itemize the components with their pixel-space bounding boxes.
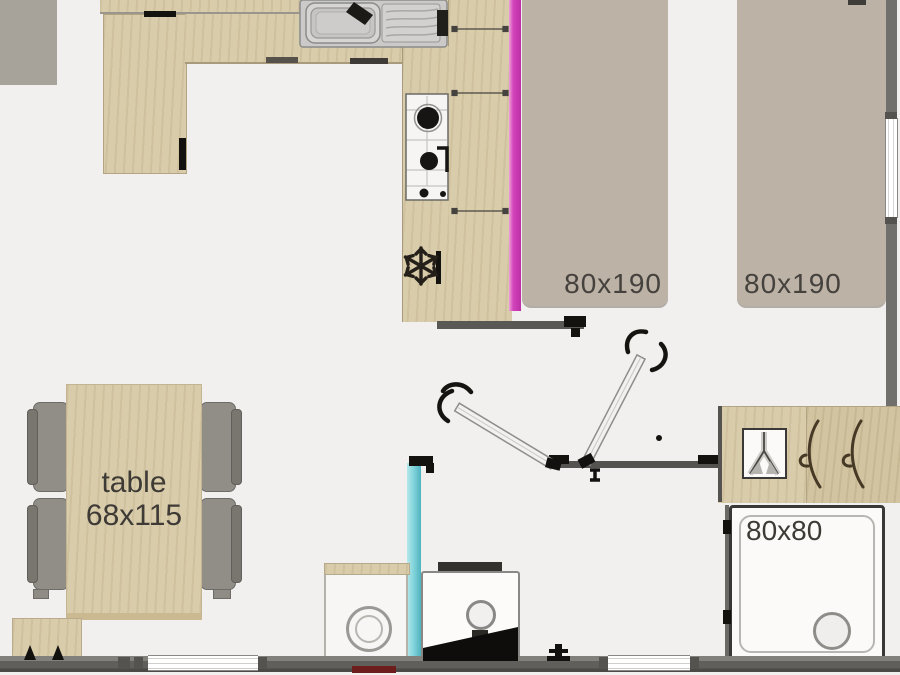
- window-cap: [118, 657, 130, 669]
- window-cap: [599, 657, 608, 669]
- chair: [33, 498, 69, 590]
- wall-mark: [848, 0, 866, 5]
- open-door-icon: [439, 384, 562, 470]
- hall-wall: [548, 461, 719, 468]
- shower-size-label: 80x80: [746, 514, 822, 547]
- bed-left: 80x190: [522, 0, 668, 306]
- chair-foot: [213, 589, 231, 599]
- window-cap: [258, 657, 267, 669]
- kitchen-appliance-column: [402, 46, 449, 322]
- washing-machine-top: [324, 563, 410, 575]
- window-bottom-right: [608, 655, 690, 671]
- hinge-icon: [564, 316, 586, 327]
- window-cap: [885, 217, 897, 224]
- chair-back: [27, 409, 38, 485]
- hinge-icon: [571, 328, 580, 337]
- chair-back: [231, 409, 242, 485]
- chair-back: [27, 505, 38, 583]
- wall-block-top-left: [0, 0, 57, 85]
- dot-mark: [656, 435, 662, 441]
- drain-icon: [813, 612, 851, 650]
- window-cap: [885, 112, 897, 119]
- chair-back: [231, 505, 242, 583]
- bed-right: 80x190: [737, 0, 886, 306]
- bed-right-size-label: 80x190: [744, 268, 842, 300]
- floor-plan: 80x190 80x190 80x80: [0, 0, 900, 675]
- bathroom-cabinet-right: [806, 406, 900, 503]
- chair-foot: [33, 589, 49, 599]
- wall-right-lower: [886, 224, 897, 416]
- cabinet-edge-wall: [718, 406, 722, 502]
- kitchen-counter-right-strip: [448, 0, 512, 322]
- window-cap: [690, 657, 699, 669]
- cabinet-handle-icon: [179, 138, 186, 170]
- bed-left-size-label: 80x190: [564, 268, 662, 300]
- chair: [33, 402, 69, 492]
- window-bottom-left: [148, 655, 258, 671]
- table-size-label: 68x115: [86, 499, 182, 532]
- accent-red-mark: [352, 666, 396, 673]
- dining-table: table 68x115: [66, 384, 202, 620]
- vanity-drain-icon: [466, 600, 496, 630]
- cabinet-handle-icon: [350, 58, 388, 64]
- table-label: table: [101, 466, 166, 499]
- cabinet-handle-icon: [266, 57, 298, 63]
- washer-door-icon: [355, 615, 383, 643]
- hinge-icon: [549, 455, 569, 464]
- shower: 80x80: [729, 505, 885, 663]
- open-door-icon: [577, 331, 665, 480]
- window-right: [885, 118, 898, 218]
- hinge-icon: [698, 455, 718, 464]
- partition-magenta: [509, 0, 521, 311]
- wall-right-upper: [886, 0, 897, 114]
- cabinet-handle-icon: [144, 11, 176, 17]
- hinge-icon: [723, 610, 731, 624]
- fridge-handle-icon: [436, 251, 441, 284]
- kitchen-counter-left-column: [103, 14, 187, 174]
- bathroom-cabinet-left: [718, 406, 806, 503]
- vanity-fitting: [472, 630, 488, 646]
- counter-end-wall: [437, 321, 584, 329]
- partition-latch-icon: [426, 463, 434, 473]
- bench: [12, 618, 82, 660]
- window-cap: [134, 657, 143, 669]
- hinge-icon: [723, 520, 731, 534]
- vanity-top-bar: [438, 562, 502, 571]
